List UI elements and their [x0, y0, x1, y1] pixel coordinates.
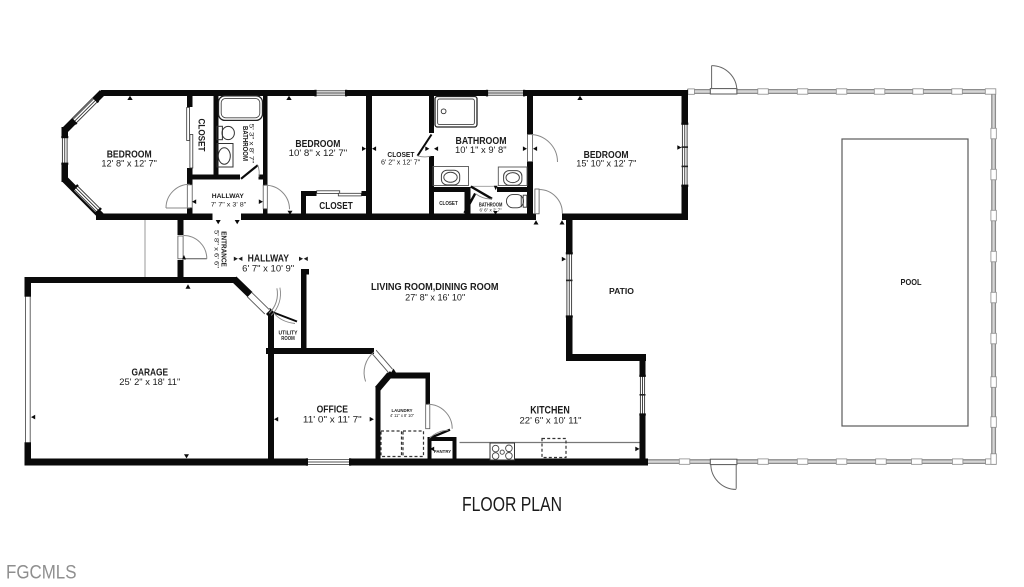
svg-text:PATIO: PATIO: [609, 286, 634, 296]
svg-text:CLOSET: CLOSET: [196, 119, 207, 152]
svg-text:ENTRANCE: ENTRANCE: [220, 231, 229, 267]
svg-text:22' 6" x 10' 11": 22' 6" x 10' 11": [520, 416, 582, 426]
svg-text:LIVING ROOM,DINING ROOM: LIVING ROOM,DINING ROOM: [371, 282, 499, 293]
svg-text:10' 1" x 9' 8": 10' 1" x 9' 8": [455, 145, 507, 155]
svg-text:6' 7" x 10' 9": 6' 7" x 10' 9": [242, 263, 294, 273]
svg-text:6' 2" x 12' 7": 6' 2" x 12' 7": [381, 158, 421, 167]
svg-text:CLOSET: CLOSET: [439, 201, 458, 207]
svg-text:12' 8" x 12' 7": 12' 8" x 12' 7": [101, 158, 157, 168]
svg-text:25' 2" x 18' 11": 25' 2" x 18' 11": [119, 377, 180, 387]
svg-text:FLOOR PLAN: FLOOR PLAN: [462, 494, 562, 516]
svg-text:6' 6" x 2' 7": 6' 6" x 2' 7": [479, 207, 502, 212]
svg-text:HALLWAY: HALLWAY: [212, 193, 244, 200]
svg-text:4' 11" x 8' 10": 4' 11" x 8' 10": [390, 413, 414, 418]
svg-text:15' 10" x 12' 7": 15' 10" x 12' 7": [576, 159, 636, 169]
svg-text:FGCMLS: FGCMLS: [6, 562, 77, 584]
svg-text:10' 8" x 12' 7": 10' 8" x 12' 7": [289, 148, 348, 158]
svg-text:POOL: POOL: [901, 278, 922, 287]
svg-text:5' 8" x 6' 6": 5' 8" x 6' 6": [213, 230, 219, 268]
svg-text:ROOM: ROOM: [281, 336, 295, 342]
svg-text:CLOSET: CLOSET: [319, 200, 353, 212]
svg-text:27' 8" x 16' 10": 27' 8" x 16' 10": [405, 293, 465, 303]
svg-text:5' 3" x 8' 7": 5' 3" x 8' 7": [248, 124, 254, 164]
svg-text:PANTRY: PANTRY: [434, 449, 452, 455]
svg-text:11' 0" x 11' 7": 11' 0" x 11' 7": [303, 414, 362, 424]
svg-text:7' 7" x 3' 8": 7' 7" x 3' 8": [211, 201, 246, 208]
